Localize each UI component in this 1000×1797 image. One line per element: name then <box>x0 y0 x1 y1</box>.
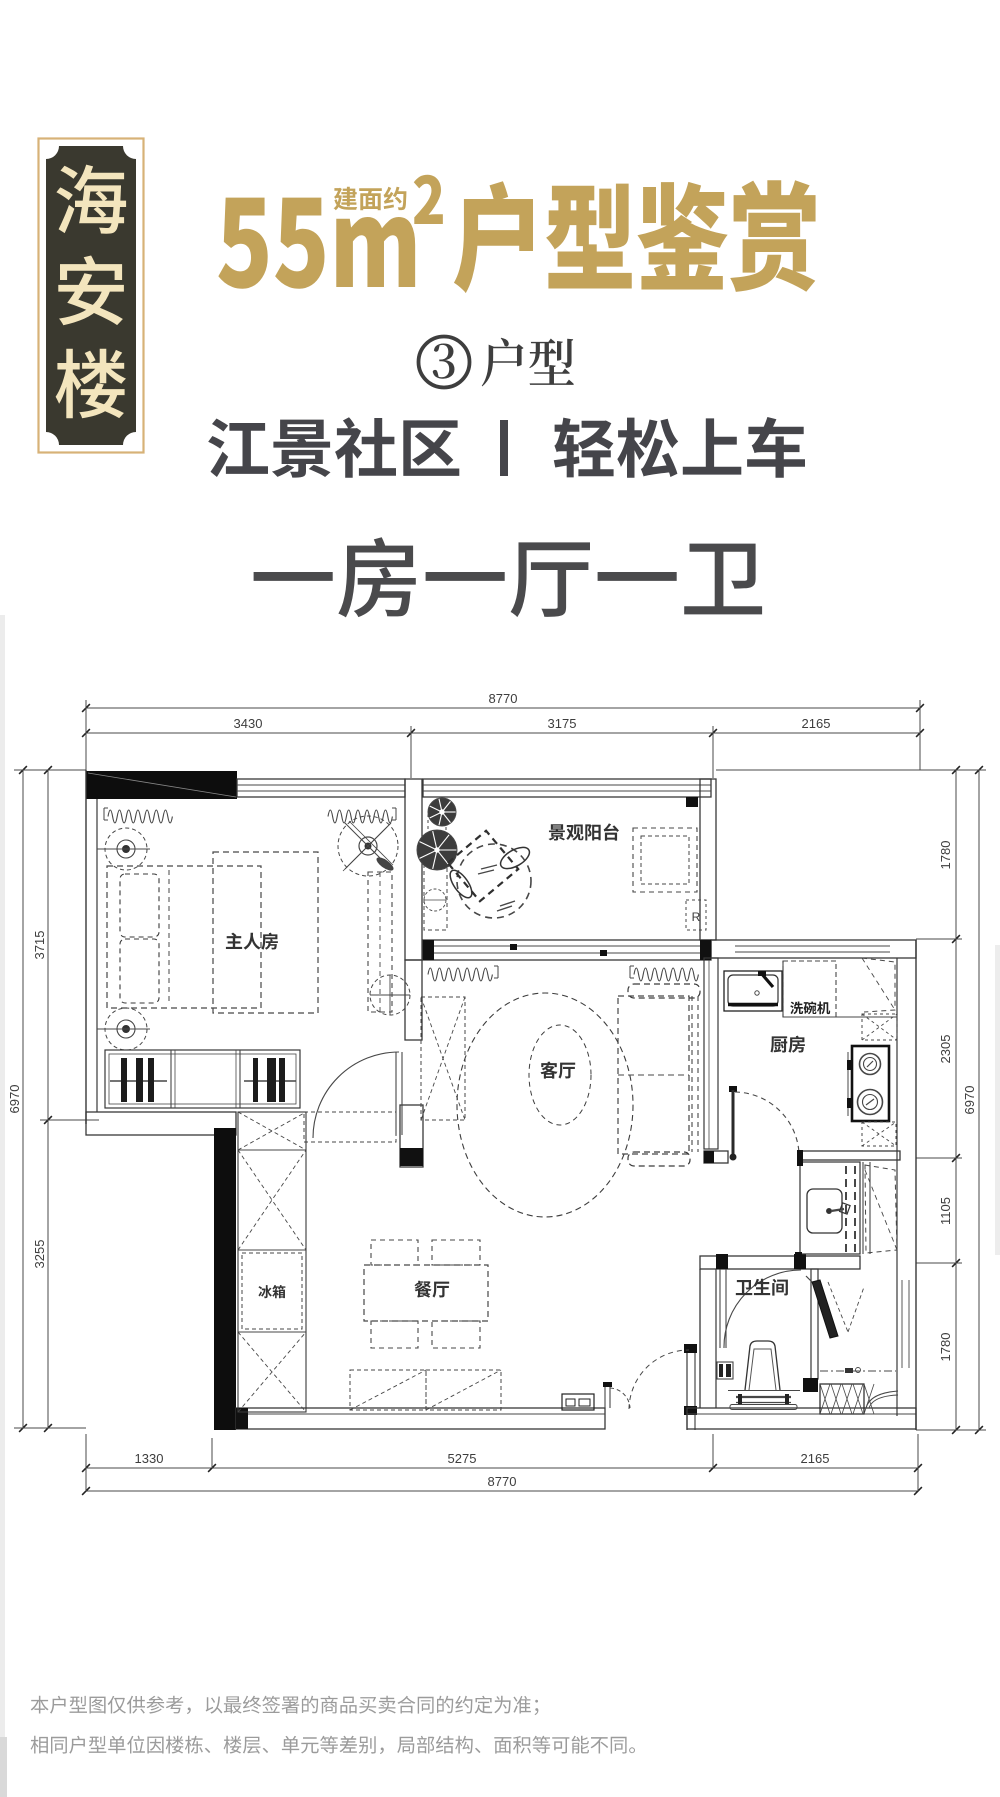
svg-text:8770: 8770 <box>489 691 518 706</box>
svg-text:1330: 1330 <box>135 1451 164 1466</box>
svg-text:3715: 3715 <box>32 931 47 960</box>
svg-text:3430: 3430 <box>234 716 263 731</box>
svg-text:8770: 8770 <box>488 1474 517 1489</box>
svg-text:3255: 3255 <box>32 1240 47 1269</box>
svg-text:2305: 2305 <box>938 1035 953 1064</box>
svg-text:6970: 6970 <box>7 1085 22 1114</box>
svg-text:3175: 3175 <box>548 716 577 731</box>
svg-text:1780: 1780 <box>938 841 953 870</box>
svg-text:1780: 1780 <box>938 1333 953 1362</box>
svg-text:2165: 2165 <box>801 1451 830 1466</box>
svg-text:6970: 6970 <box>962 1086 977 1115</box>
svg-text:1105: 1105 <box>938 1197 953 1225</box>
svg-text:5275: 5275 <box>448 1451 477 1466</box>
svg-text:2165: 2165 <box>802 716 831 731</box>
svg-text:R: R <box>692 910 701 924</box>
